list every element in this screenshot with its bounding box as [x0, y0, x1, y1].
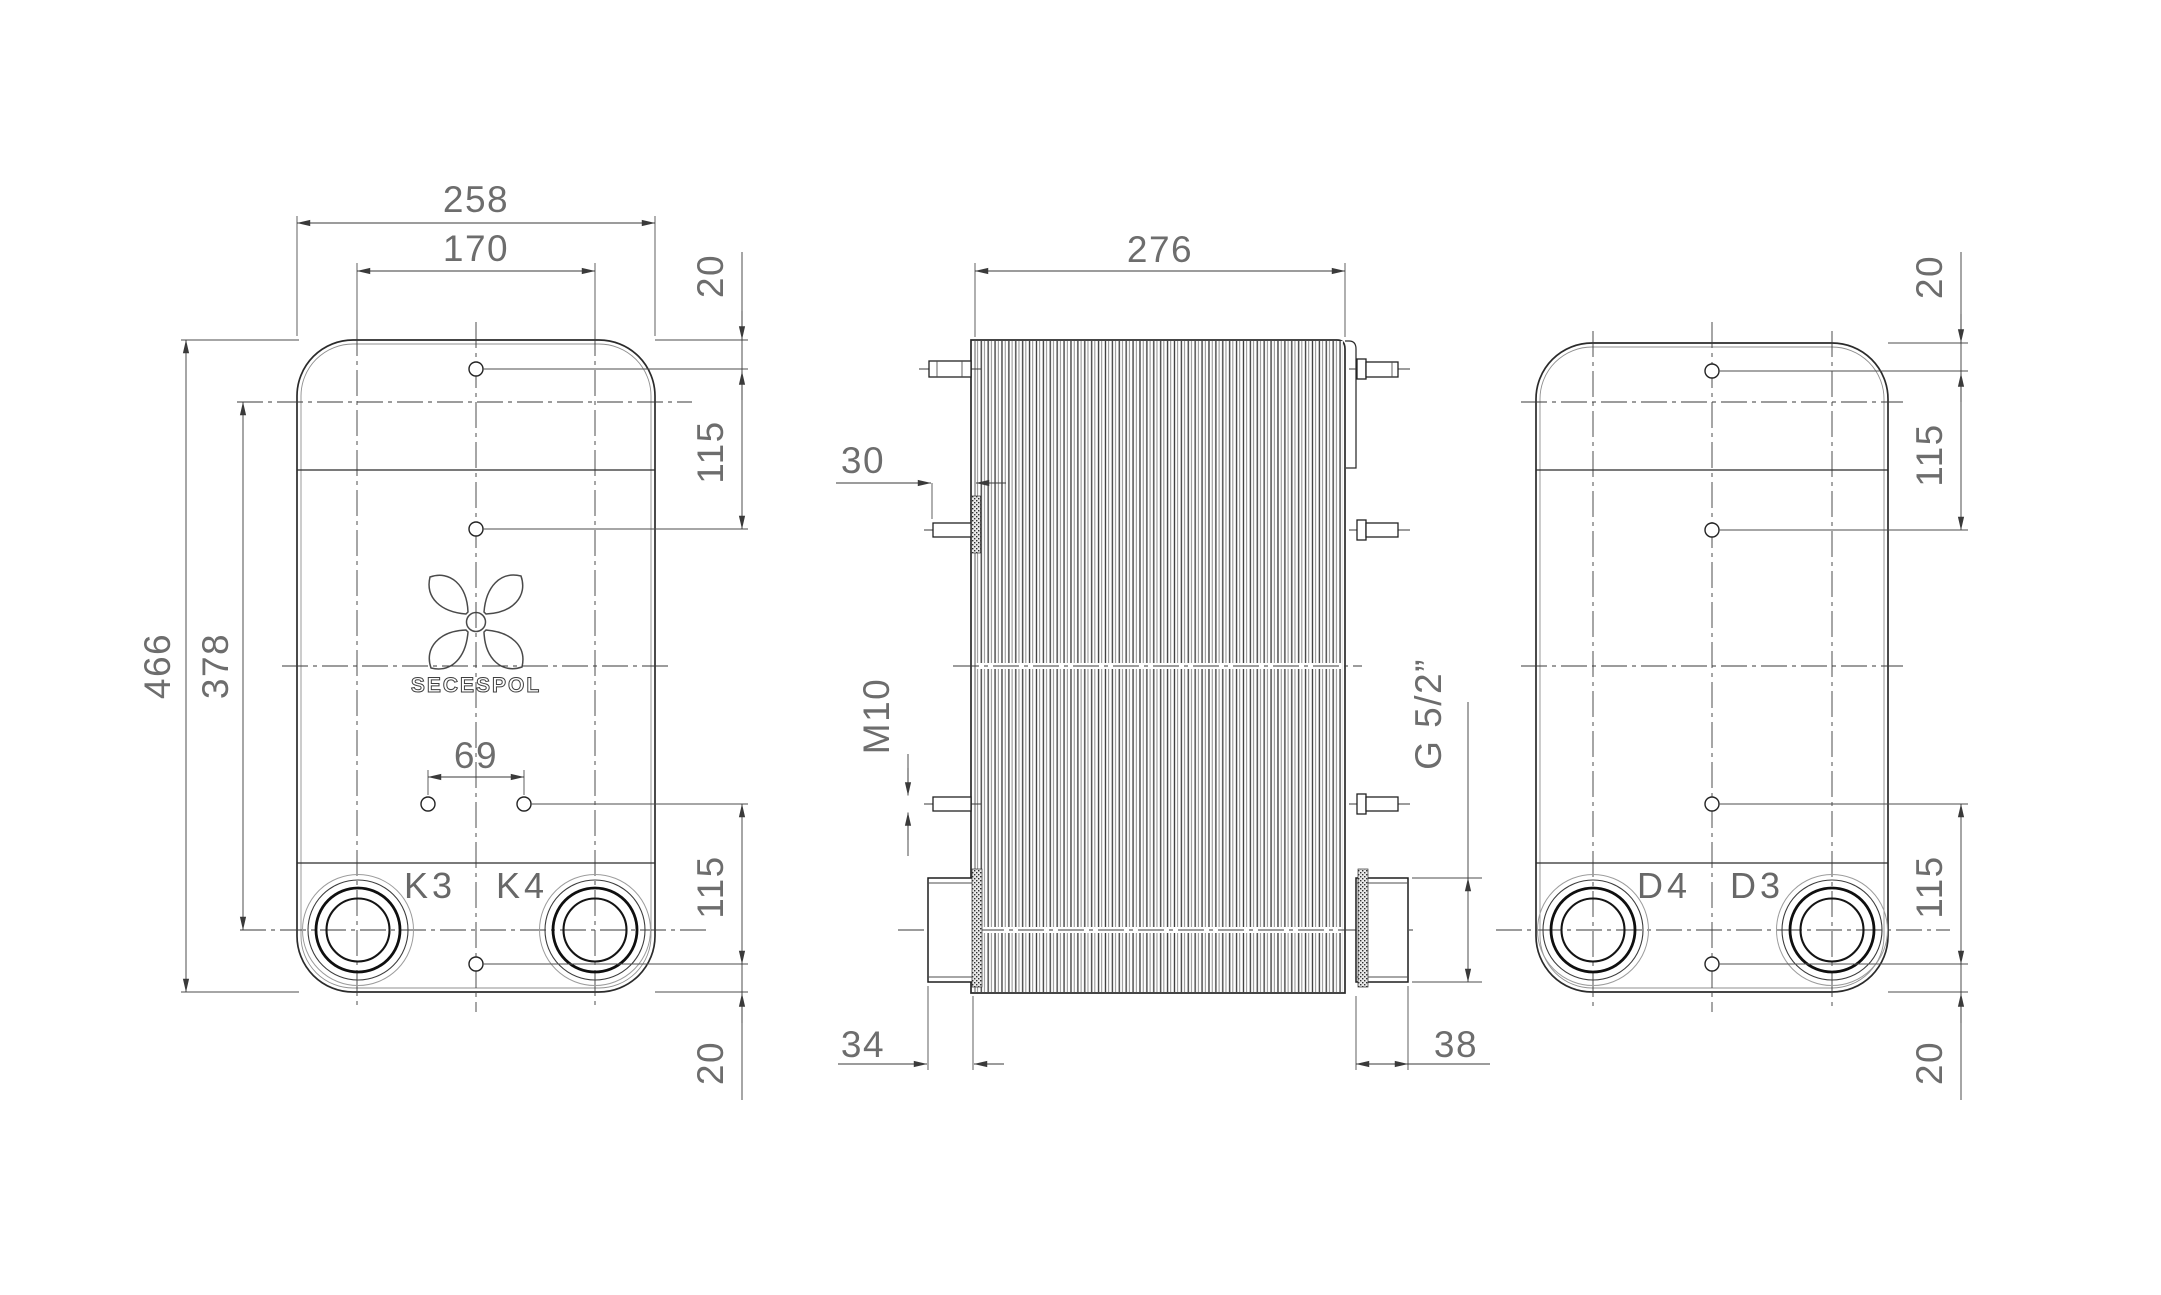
front-view: SECESPOL K3 K4 [137, 179, 748, 1100]
rear-port-label-d3: D3 [1730, 865, 1784, 906]
dim-rear-bottom-offset: 20 [1909, 1041, 1950, 1085]
dim-front-top-offset: 20 [690, 254, 731, 298]
dim-front-overall-height: 466 [137, 633, 178, 699]
side-gasket-section-upper [972, 496, 981, 553]
dim-front-upper-pitch: 115 [690, 420, 731, 484]
dim-front-overall-width: 258 [443, 179, 509, 220]
dim-rear-upper-pitch: 115 [1909, 423, 1950, 487]
rear-port-label-d4: D4 [1637, 865, 1691, 906]
dim-front-port-height: 378 [195, 633, 236, 699]
side-view: 276 30 M10 G 5/2” 34 38 [836, 229, 1490, 1070]
dim-side-stud-thread: M10 [856, 678, 897, 754]
dim-rear-top-offset: 20 [1909, 255, 1950, 299]
dim-side-front-nozzle: 34 [841, 1024, 885, 1065]
dim-front-lower-pitch: 115 [690, 855, 731, 919]
dim-front-bottom-offset: 20 [690, 1041, 731, 1085]
dim-side-stud-protrusion: 30 [841, 440, 885, 481]
dim-side-connection-thread: G 5/2” [1408, 658, 1449, 770]
side-port-boss-front [928, 869, 982, 987]
side-port-boss-rear [1356, 869, 1408, 987]
dim-front-hole-span: 170 [443, 228, 509, 269]
drawing-sheet: SECESPOL K3 K4 [0, 0, 2161, 1295]
front-port-label-k4: K4 [496, 865, 548, 906]
technical-drawing-svg: SECESPOL K3 K4 [0, 0, 2161, 1295]
dim-rear-lower-pitch: 115 [1909, 855, 1950, 919]
dim-side-pack-length: 276 [1127, 229, 1193, 270]
rear-view: D4 D3 20 115 [1496, 252, 1968, 1100]
dim-side-rear-nozzle: 38 [1434, 1024, 1478, 1065]
dim-front-hole-pair-span: 69 [454, 735, 498, 776]
side-back-cover-lip [1345, 341, 1356, 468]
front-port-label-k3: K3 [404, 865, 456, 906]
